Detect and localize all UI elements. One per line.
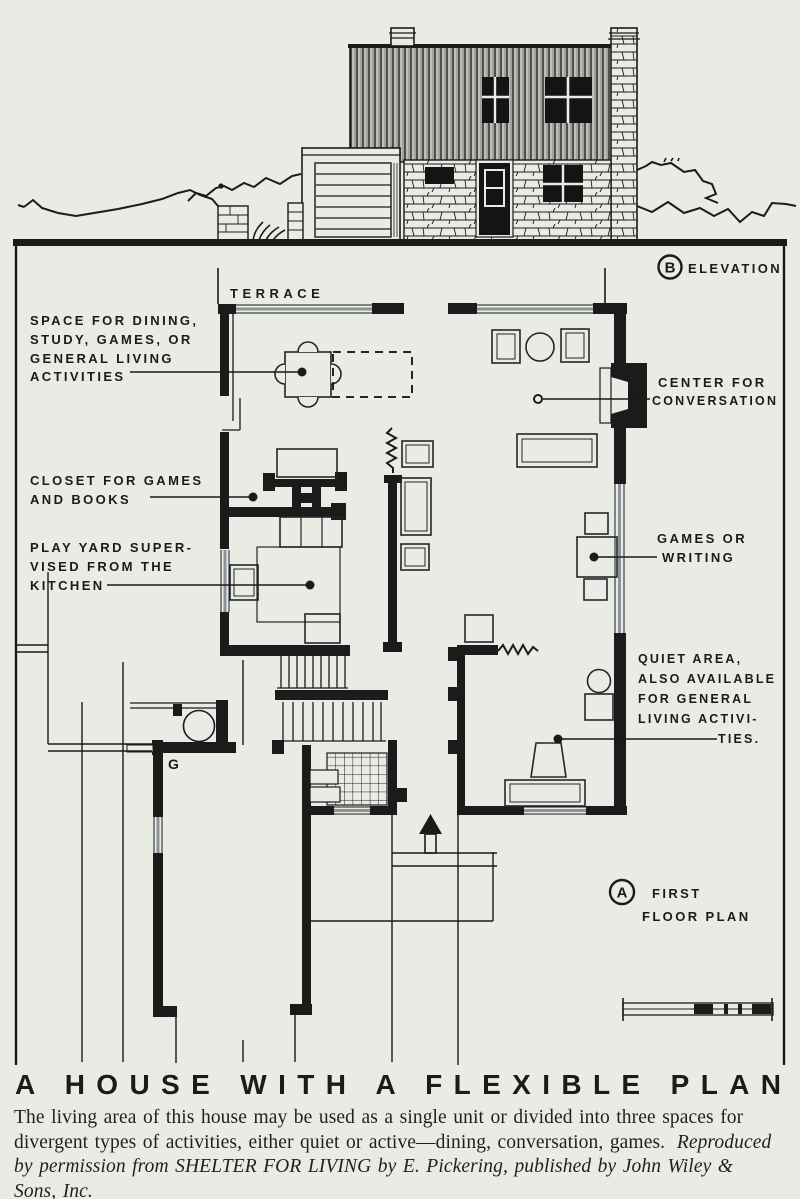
bush-right-lower — [637, 202, 796, 222]
elevation-tag-label: ELEVATION — [688, 261, 782, 276]
dining-label-line1: SPACE FOR DINING, — [30, 313, 198, 328]
stone-pier-right — [288, 203, 303, 240]
quiet-lounge-chair — [531, 743, 566, 777]
games-chair-north — [585, 513, 608, 534]
entrance-arrow — [419, 814, 442, 853]
round-table — [526, 333, 554, 361]
terrace-label: TERRACE — [230, 286, 324, 301]
furniture — [230, 329, 617, 806]
quiet-label-line2: ALSO AVAILABLE — [638, 672, 776, 686]
elevation-left-chimney — [389, 28, 416, 46]
floor-plan-walls — [127, 268, 647, 1017]
bush-left-tip — [18, 205, 24, 207]
front-door — [476, 160, 513, 237]
garage-label: G — [168, 756, 179, 772]
dining-label-line4: ACTIVITIES — [30, 369, 126, 384]
closet-label-line2: AND BOOKS — [30, 492, 131, 507]
elevation-drawing — [13, 28, 796, 246]
partition-chair-1 — [402, 441, 433, 467]
caption-line-2: divergent types of activities, either qu… — [14, 1131, 788, 1156]
bush-leaf-dot — [218, 183, 223, 188]
conversation-label-line2: CONVERSATION — [652, 394, 778, 408]
quiet-label-line4: LIVING ACTIVI- — [638, 712, 759, 726]
caption: The living area of this house may be use… — [14, 1106, 788, 1199]
caption-line-1: The living area of this house may be use… — [14, 1106, 788, 1131]
plan-tag-label-line2: FLOOR PLAN — [642, 909, 751, 924]
closet-label-line1: CLOSET FOR GAMES — [30, 473, 203, 488]
quiet-chair — [585, 694, 613, 720]
bush-right-ticks — [664, 158, 679, 162]
living-chair-1 — [492, 330, 520, 363]
elevation-garage — [302, 148, 400, 240]
dining-label-line3: GENERAL LIVING — [30, 351, 174, 366]
hall-chair — [465, 615, 493, 642]
living-chair-2 — [561, 329, 589, 362]
quiet-label-line5: TIES. — [718, 732, 760, 746]
play-yard-label-line3: KITCHEN — [30, 578, 105, 593]
first-floor-window-left — [425, 167, 454, 184]
kitchen-sink — [230, 565, 258, 600]
closet-table — [277, 449, 337, 477]
quiet-round-table — [588, 670, 611, 693]
architectural-drawing: TERRACE SPACE FOR DINING, STUDY, GAMES, … — [0, 0, 800, 1199]
quiet-label-line1: QUIET AREA, — [638, 652, 742, 666]
plan-labels: TERRACE SPACE FOR DINING, STUDY, GAMES, … — [30, 256, 782, 925]
first-floor-window-right — [543, 165, 583, 202]
games-chair-south — [584, 579, 607, 600]
play-yard-label-line2: VISED FROM THE — [30, 559, 174, 574]
elevation-stone-chimney — [608, 28, 640, 243]
bush-right-upper — [637, 162, 718, 203]
caption-line-3: by permission from SHELTER FOR LIVING by… — [14, 1155, 788, 1180]
kitchen-table — [305, 614, 340, 643]
plant-strokes — [253, 222, 285, 240]
accordion-door-vertical — [387, 428, 396, 473]
caption-line-4: Sons, Inc. — [14, 1180, 788, 1199]
kitchen-counter — [280, 517, 342, 547]
bush-left — [24, 190, 218, 216]
elevation-tag-letter: B — [665, 260, 676, 277]
book-page: TERRACE SPACE FOR DINING, STUDY, GAMES, … — [0, 0, 800, 1199]
dining-table — [275, 342, 341, 407]
play-yard-label-line1: PLAY YARD SUPER- — [30, 540, 193, 555]
second-floor-window-right — [545, 77, 592, 123]
fireplace — [600, 363, 647, 428]
dining-table-extension-dashed — [333, 352, 412, 397]
ground-line — [13, 239, 787, 246]
scale-bar — [623, 998, 773, 1021]
bath-fixture — [184, 711, 215, 742]
second-floor-window-left — [482, 77, 509, 123]
games-label-line2: WRITING — [662, 550, 735, 565]
plan-tag-label-line1: FIRST — [652, 886, 702, 901]
stairs — [272, 656, 388, 754]
dining-label-line2: STUDY, GAMES, OR — [30, 332, 193, 347]
quiet-sofa — [505, 780, 585, 806]
partition-sofa — [401, 478, 431, 535]
conversation-label-line1: CENTER FOR — [658, 375, 767, 390]
accordion-door-horizontal — [498, 645, 538, 654]
conversation-sofa — [517, 434, 597, 467]
quiet-label-line3: FOR GENERAL — [638, 692, 753, 706]
plan-tag-letter: A — [617, 885, 628, 902]
elevation-roof-line — [348, 44, 614, 48]
partition-chair-2 — [401, 544, 429, 570]
games-label-line1: GAMES OR — [657, 531, 747, 546]
stone-pier-left — [218, 206, 248, 240]
page-title: A HOUSE WITH A FLEXIBLE PLAN — [15, 1069, 785, 1100]
